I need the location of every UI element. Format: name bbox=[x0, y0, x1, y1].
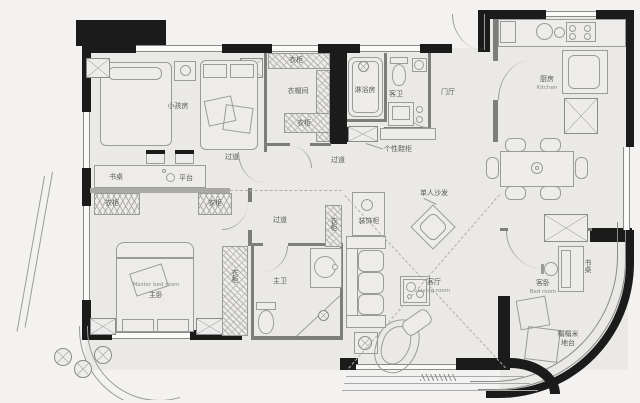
kids-lamp-left bbox=[86, 58, 110, 78]
master-tall-wardrobe bbox=[222, 246, 248, 336]
shower-head-icon bbox=[358, 61, 369, 72]
kitchen-burner-4 bbox=[584, 33, 591, 40]
window-left-1 bbox=[83, 112, 90, 168]
fridge bbox=[564, 98, 598, 134]
label-guest-bed: 客卧 bbox=[536, 279, 550, 287]
sightline-corridor bbox=[230, 190, 342, 191]
gbath-sink-basin bbox=[392, 106, 410, 120]
kitchen-counter-right-basin bbox=[568, 55, 600, 89]
door-arc-entry bbox=[452, 14, 484, 50]
master-headboard bbox=[116, 242, 194, 258]
wall-shower-bath bbox=[384, 53, 387, 122]
label-cloakroom: 衣帽间 bbox=[288, 87, 309, 95]
label-wardrobe-left: 衣柜 bbox=[105, 199, 119, 207]
dining-chair-top-2 bbox=[540, 138, 561, 152]
sofa-cushion-1 bbox=[358, 250, 384, 272]
kids-desk-stool-circle bbox=[166, 173, 175, 182]
gbath-accessory-1 bbox=[416, 106, 423, 113]
left-balcony-edge-2 bbox=[17, 176, 45, 332]
label-wardrobe-right: 衣柜 bbox=[208, 199, 222, 207]
label-living-en: Living room bbox=[418, 287, 450, 295]
balcony-rail-3 bbox=[342, 390, 538, 391]
dining-chair-bottom-2 bbox=[540, 186, 561, 200]
sofa-cushion-2 bbox=[358, 272, 384, 294]
mbath-shower-head-icon bbox=[318, 310, 329, 321]
master-nightstand-right bbox=[196, 318, 223, 335]
dining-chair-left bbox=[486, 157, 499, 179]
label-living: 客厅 bbox=[427, 278, 441, 286]
label-hallway-2: 过道 bbox=[331, 156, 345, 164]
sofa-cushion-3 bbox=[358, 294, 384, 315]
dining-chair-bottom-1 bbox=[505, 186, 526, 200]
wall-top-2 bbox=[222, 44, 272, 53]
gbath-accessory-2 bbox=[416, 116, 423, 123]
wall-mbath-left bbox=[251, 243, 254, 339]
kitchen-sink-bowl-2 bbox=[554, 27, 565, 38]
wall-top-4 bbox=[420, 44, 452, 53]
label-kitchen-en: Kitchen bbox=[537, 84, 558, 92]
window-top-2 bbox=[272, 45, 318, 52]
label-deco-cabinet: 装饰柜 bbox=[359, 217, 380, 225]
mbath-tap bbox=[332, 264, 338, 270]
wall-cloak-bottom-1 bbox=[264, 143, 290, 146]
kids-nightstand-lamp bbox=[180, 65, 191, 76]
label-hallway-1: 过道 bbox=[225, 153, 239, 161]
kitchen-burner-1 bbox=[569, 25, 576, 32]
sofa-arm-top bbox=[346, 236, 386, 249]
wall-guestbath-right bbox=[428, 53, 431, 130]
kids-stool-1-top bbox=[146, 150, 165, 154]
window-left-2 bbox=[83, 206, 90, 300]
floor-plan: 小孩房 过道 过道 过道 衣帽间 衣柜 衣柜 淋浴房 客卫 个性鞋柜 门厅 厨房… bbox=[0, 0, 640, 403]
wall-topleft-block bbox=[76, 20, 166, 46]
wall-left-2 bbox=[82, 168, 91, 206]
wall-kids-cloak bbox=[264, 53, 267, 152]
wall-shower-bottom bbox=[347, 119, 384, 122]
curtain-symbol bbox=[420, 374, 456, 381]
window-top-3 bbox=[360, 45, 420, 52]
label-kitchen: 厨房 bbox=[540, 75, 554, 83]
label-master-bath: 主卫 bbox=[273, 277, 287, 285]
gbath-toilet-bowl bbox=[392, 64, 406, 86]
kitchen-burner-2 bbox=[584, 25, 591, 32]
wall-hall-pier bbox=[333, 127, 349, 142]
tatami-cushion-1 bbox=[516, 296, 551, 331]
balcony-rail-2 bbox=[344, 383, 530, 384]
label-kids-room: 小孩房 bbox=[168, 102, 189, 110]
window-top-1 bbox=[136, 45, 222, 52]
wall-cloak-bottom-2 bbox=[310, 143, 331, 146]
left-balcony-edge-1 bbox=[25, 172, 53, 328]
shoe-cabinet bbox=[348, 126, 378, 142]
kids-bed-2-pillow-2 bbox=[230, 64, 254, 78]
wall-right-upper bbox=[626, 10, 634, 147]
kids-bed-2-pillow-1 bbox=[203, 64, 227, 78]
tatami-cushion-2 bbox=[524, 326, 561, 363]
label-guest-desk: 书桌 bbox=[584, 259, 592, 273]
window-dining-right bbox=[623, 147, 630, 230]
label-master-en: Master bed room bbox=[133, 281, 180, 289]
label-cloak-wardrobe-top: 衣柜 bbox=[289, 56, 303, 64]
balcony-plant-3 bbox=[94, 346, 112, 364]
kitchen-sink-bowl-1 bbox=[536, 23, 553, 40]
deco-cabinet-lamp bbox=[361, 199, 373, 211]
wall-kitchen-left-2 bbox=[493, 100, 498, 142]
dining-centerpiece-dot bbox=[535, 166, 539, 170]
label-cloak-wardrobe-bottom: 衣柜 bbox=[297, 119, 311, 127]
dining-chair-right bbox=[575, 157, 588, 179]
guestbed-chair bbox=[544, 262, 558, 276]
label-guest-bed-en: Bed room bbox=[530, 288, 557, 296]
kids-stool-2-top bbox=[175, 150, 194, 154]
gbath-drain-circle bbox=[414, 60, 424, 70]
label-platform: 平台 bbox=[179, 174, 193, 182]
sofa-arm-bottom bbox=[346, 315, 386, 328]
kitchen-burner-3 bbox=[569, 33, 576, 40]
balcony-plant-1 bbox=[54, 348, 72, 366]
kids-bed-1-pillow bbox=[108, 67, 162, 80]
label-guest-bath: 客卫 bbox=[389, 90, 403, 98]
left-balcony-arc-outer bbox=[79, 326, 180, 400]
wall-kitchen-top-left bbox=[488, 10, 546, 19]
label-master: 主卧 bbox=[149, 291, 163, 299]
mbath-toilet-tank bbox=[256, 302, 276, 310]
kitchen-cabinet bbox=[500, 21, 516, 43]
door-leaf-entry bbox=[484, 14, 485, 50]
wall-left-1 bbox=[82, 44, 91, 112]
guestbed-wardrobe bbox=[544, 214, 588, 242]
kids-bed-2-duvet-2 bbox=[222, 104, 253, 134]
mbath-toilet-bowl bbox=[258, 310, 274, 334]
label-tatami-1: 榻榻米 bbox=[558, 330, 579, 338]
label-shower-room: 淋浴房 bbox=[355, 86, 376, 94]
guestbed-desk-inner bbox=[561, 250, 571, 288]
balcony-plant-2 bbox=[74, 360, 92, 378]
label-tatami-2: 地台 bbox=[561, 339, 575, 347]
label-book-desk: 书桌 bbox=[109, 173, 123, 181]
window-kitchen bbox=[546, 11, 596, 17]
guestbed-chair-back bbox=[541, 264, 544, 274]
label-single-sofa: 单人沙发 bbox=[420, 189, 448, 197]
gbath-toilet-tank bbox=[390, 57, 408, 64]
hall-low-cabinet bbox=[380, 128, 436, 140]
label-master-wardrobe: 衣柜 bbox=[231, 269, 239, 283]
label-living-wardrobe: 衣柜 bbox=[330, 217, 338, 231]
label-hallway-3: 过道 bbox=[273, 216, 287, 224]
wall-mbath-bottom bbox=[251, 336, 343, 340]
dining-chair-top-1 bbox=[505, 138, 526, 152]
kids-desk-deco-dot bbox=[162, 169, 166, 173]
label-shoe-cabinet: 个性鞋柜 bbox=[384, 145, 412, 153]
label-foyer: 门厅 bbox=[441, 88, 455, 96]
